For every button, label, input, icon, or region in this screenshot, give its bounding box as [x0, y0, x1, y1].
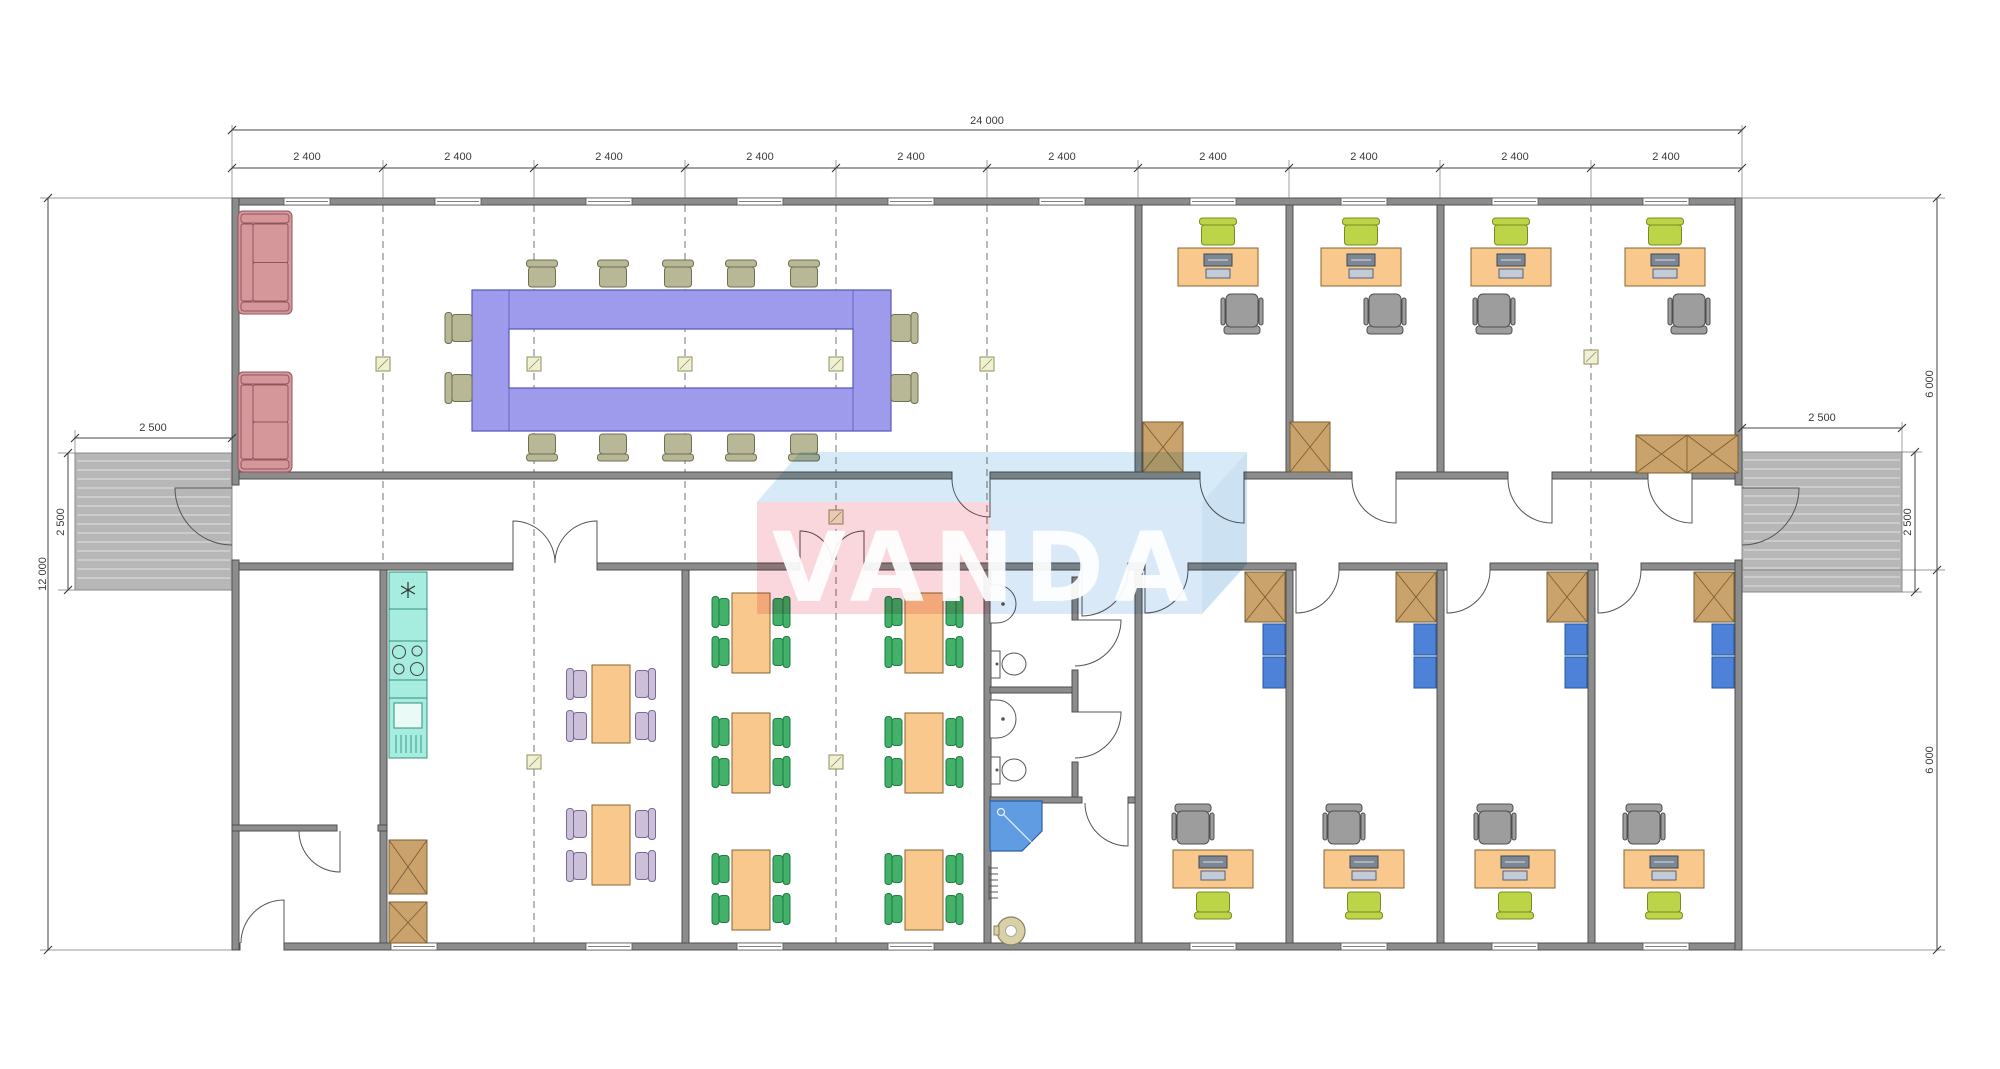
visitor-chair: [1343, 218, 1380, 245]
dim-porch: 2 500: [55, 508, 67, 536]
desk: [1475, 850, 1555, 888]
wall: [1588, 570, 1595, 943]
office-chair: [1473, 294, 1515, 334]
corner-shower: [990, 801, 1042, 851]
dining-table: [732, 713, 770, 793]
dining-table: [592, 665, 630, 743]
dining-chair-green: [885, 894, 902, 925]
locker: [1414, 624, 1436, 655]
sink-basin: [394, 703, 422, 728]
window: [586, 198, 632, 205]
dim-bay: 2 400: [293, 151, 321, 163]
dim-porch: 2 500: [139, 422, 167, 434]
window: [1341, 198, 1387, 205]
column-marker: [527, 755, 541, 769]
conference-chair: [891, 313, 918, 344]
dining-table: [905, 850, 943, 930]
computer-keyboard: [1352, 871, 1376, 880]
computer-keyboard: [1499, 269, 1523, 278]
dining-chair-green: [712, 894, 729, 925]
toilet: [991, 757, 1026, 784]
window: [888, 943, 934, 950]
door: [1598, 570, 1641, 613]
computer-keyboard: [1652, 871, 1676, 880]
dining-chair-green: [712, 637, 729, 668]
dining-chair-green: [885, 637, 902, 668]
door: [1352, 479, 1396, 523]
door: [241, 900, 284, 943]
office-chair: [1221, 294, 1263, 334]
dining-chair-green: [773, 894, 790, 925]
locker: [1712, 657, 1734, 688]
wall: [1735, 560, 1742, 950]
window: [1039, 198, 1085, 205]
entrance-ramp-right: [1742, 452, 1902, 592]
cabinet: [1396, 572, 1436, 622]
dim-bay: 2 400: [1199, 151, 1227, 163]
dining-chair-green: [773, 637, 790, 668]
window: [1492, 198, 1538, 205]
office-chair: [1172, 804, 1214, 844]
visitor-chair: [1346, 892, 1383, 919]
cabinet: [1290, 422, 1330, 472]
wall: [1135, 205, 1142, 472]
wall: [1072, 670, 1078, 712]
locker: [1263, 657, 1285, 688]
dining-chair-lavender: [567, 809, 587, 840]
wall: [232, 560, 239, 950]
wall: [378, 825, 387, 831]
door: [1085, 803, 1128, 846]
office-chair: [1364, 294, 1406, 334]
door: [1075, 712, 1121, 758]
conference-chair: [527, 434, 558, 461]
dim-bay: 2 400: [1501, 151, 1529, 163]
door: [1075, 620, 1121, 666]
watermark-top-face: [757, 452, 1247, 502]
computer-keyboard: [1349, 269, 1373, 278]
wall: [232, 563, 513, 570]
dim-porch: 2 500: [1808, 412, 1836, 424]
column-marker: [829, 755, 843, 769]
locker: [1565, 624, 1587, 655]
dining-chair-green: [773, 854, 790, 885]
wall: [1437, 205, 1444, 472]
vanda-watermark: VANDA: [757, 452, 1247, 624]
window: [1341, 943, 1387, 950]
dim-bay: 2 400: [1048, 151, 1076, 163]
watermark-text: VANDA: [772, 512, 1198, 624]
window: [435, 198, 481, 205]
dim-bay: 2 400: [595, 151, 623, 163]
wall: [232, 825, 337, 831]
column-marker: [527, 357, 541, 371]
dining-chair-green: [946, 757, 963, 788]
computer-keyboard: [1503, 871, 1527, 880]
cabinet: [389, 902, 427, 943]
dining-chair-green: [712, 854, 729, 885]
floor-plan: VANDA 24 000 2 400 2 400 2 400 2 400 2 4…: [0, 0, 2000, 1069]
conference-chair: [663, 434, 694, 461]
window: [1643, 943, 1689, 950]
dim-height: 12 000: [37, 557, 49, 591]
conference-chair: [527, 260, 558, 287]
dim-bay: 2 400: [444, 151, 472, 163]
wall: [1339, 563, 1447, 570]
wall: [984, 570, 991, 943]
door: [1447, 570, 1490, 613]
dining-chair-green: [946, 717, 963, 748]
dining-chair-green: [773, 717, 790, 748]
wall: [682, 570, 689, 943]
dim-bay: 2 400: [897, 151, 925, 163]
dining-chair-lavender: [636, 851, 656, 882]
wall: [1135, 570, 1142, 943]
wall: [1128, 797, 1135, 803]
conference-chair: [663, 260, 694, 287]
window: [1643, 198, 1689, 205]
desk: [1471, 248, 1551, 286]
door: [299, 831, 340, 872]
office-chair: [1623, 804, 1665, 844]
dining-chair-green: [885, 854, 902, 885]
conference-chair: [598, 260, 629, 287]
desk: [1624, 850, 1704, 888]
kitchen-counter: [389, 572, 427, 758]
wall: [1244, 472, 1352, 479]
wall: [1286, 570, 1293, 943]
wall: [380, 570, 387, 943]
visitor-chair: [1493, 218, 1530, 245]
dining-table: [592, 805, 630, 885]
computer-keyboard: [1653, 269, 1677, 278]
counter: [389, 680, 427, 698]
cabinet: [389, 840, 427, 894]
cabinet: [1636, 435, 1738, 473]
entrance-ramp-left: [75, 453, 232, 590]
visitor-chair: [1195, 892, 1232, 919]
dining-chair-lavender: [636, 809, 656, 840]
desk: [1625, 248, 1705, 286]
door: [1296, 570, 1339, 613]
dining-chair-green: [712, 757, 729, 788]
column-marker: [1584, 350, 1598, 364]
wall: [1396, 472, 1508, 479]
door: [555, 521, 597, 563]
dining-chair-lavender: [567, 711, 587, 742]
floor-plan-page: VANDA 24 000 2 400 2 400 2 400 2 400 2 4…: [0, 0, 2000, 1069]
conference-chair: [789, 260, 820, 287]
dining-chair-lavender: [636, 711, 656, 742]
column-marker: [829, 357, 843, 371]
window: [1190, 198, 1236, 205]
wall: [1641, 563, 1742, 570]
dim-half: 6 000: [1924, 370, 1936, 398]
toilet: [991, 651, 1026, 678]
window: [284, 198, 330, 205]
dim-overall: 24 000: [970, 115, 1004, 127]
conference-chair: [726, 260, 757, 287]
window: [888, 198, 934, 205]
sofa: [238, 372, 292, 472]
dining-table: [732, 850, 770, 930]
visitor-chair: [1646, 892, 1683, 919]
desk: [1178, 248, 1258, 286]
locker: [1414, 657, 1436, 688]
conference-chair: [445, 313, 472, 344]
conference-chair: [598, 434, 629, 461]
window: [391, 943, 437, 950]
locker: [1712, 624, 1734, 655]
office-chair: [1668, 294, 1710, 334]
dining-chair-green: [946, 894, 963, 925]
cabinet: [1245, 572, 1285, 622]
wall: [1072, 762, 1078, 802]
dim-porch: 2 500: [1902, 508, 1914, 536]
column-marker: [376, 357, 390, 371]
wall: [1490, 563, 1598, 570]
visitor-chair: [1497, 892, 1534, 919]
visitor-chair: [1647, 218, 1684, 245]
locker: [1263, 624, 1285, 655]
cabinet: [1547, 572, 1587, 622]
window: [1492, 943, 1538, 950]
visitor-chair: [1200, 218, 1237, 245]
dining-chair-green: [712, 597, 729, 628]
bathroom: [989, 585, 1042, 945]
wall: [990, 687, 1072, 693]
conference-chair: [445, 373, 472, 404]
dim-half: 6 000: [1924, 746, 1936, 774]
column-marker: [980, 357, 994, 371]
wall: [1437, 570, 1444, 943]
locker: [1565, 657, 1587, 688]
desk: [1173, 850, 1253, 888]
computer-keyboard: [1206, 269, 1230, 278]
desk: [1324, 850, 1404, 888]
door: [1508, 479, 1552, 523]
column-marker: [678, 357, 692, 371]
dim-bay: 2 400: [1652, 151, 1680, 163]
dining-chair-green: [946, 854, 963, 885]
dim-bay: 2 400: [1350, 151, 1378, 163]
dining-chair-green: [773, 757, 790, 788]
dining-chair-green: [885, 717, 902, 748]
cabinet: [1694, 572, 1734, 622]
dining-table: [905, 713, 943, 793]
dining-chair-lavender: [567, 851, 587, 882]
window: [1190, 943, 1236, 950]
door: [1648, 479, 1692, 523]
dining-chair-lavender: [636, 669, 656, 700]
dining-chair-lavender: [567, 669, 587, 700]
dining-chair-green: [885, 757, 902, 788]
window: [737, 198, 783, 205]
window: [737, 943, 783, 950]
office-chair: [1323, 804, 1365, 844]
dining-chair-green: [946, 637, 963, 668]
counter: [389, 609, 427, 641]
office-chair: [1474, 804, 1516, 844]
wall: [1552, 472, 1648, 479]
dim-bay: 2 400: [746, 151, 774, 163]
desk: [1321, 248, 1401, 286]
dining-chair-green: [712, 717, 729, 748]
computer-keyboard: [1201, 871, 1225, 880]
conference-chair: [891, 373, 918, 404]
sofa: [238, 211, 292, 314]
conference-chair: [726, 434, 757, 461]
window: [586, 943, 632, 950]
